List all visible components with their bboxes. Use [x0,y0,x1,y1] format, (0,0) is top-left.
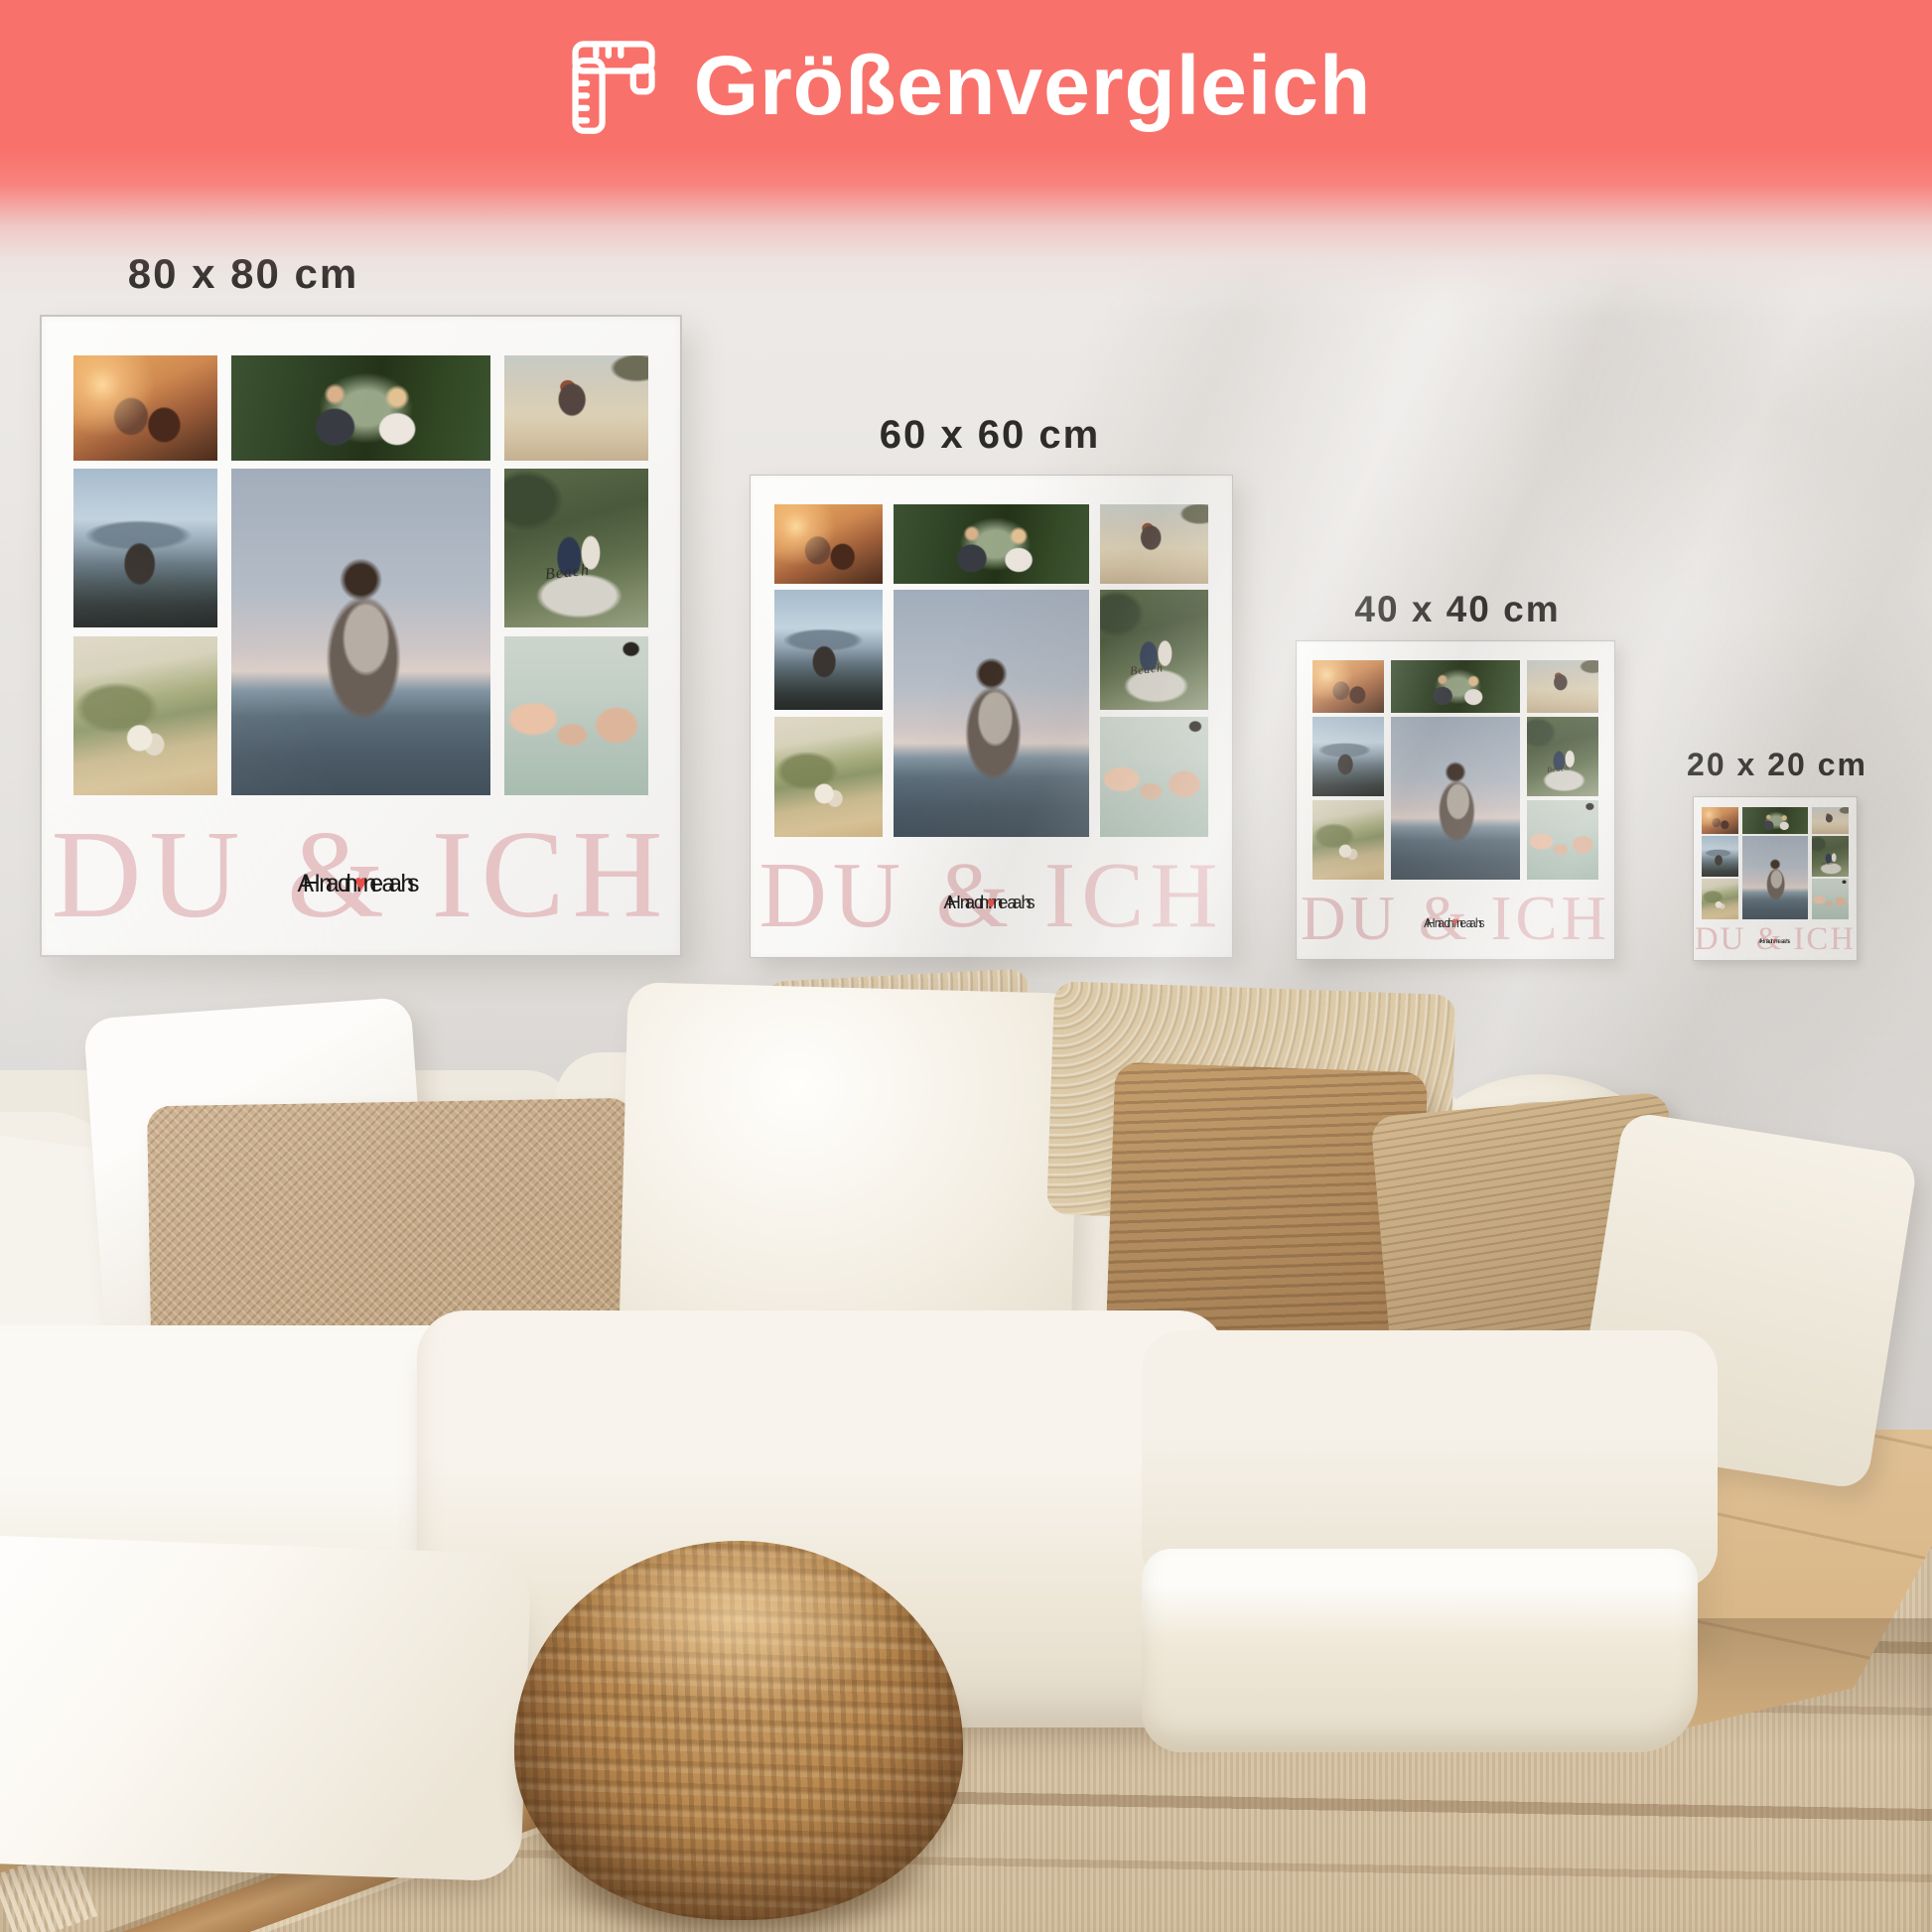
name-right: Hannah [1760,938,1791,946]
photo-couple-sunset-overlook [1312,660,1384,713]
photo-hands-pinky-promise [1527,800,1598,880]
photo-couple-in-boat: Beach [504,469,648,627]
photo-couple-mountain-view [1702,836,1738,877]
sofa-seat-right [1142,1549,1698,1752]
poster-20x20: Beach DU & ICH Andreas ♥ Hannah [1693,796,1858,961]
boat-script-text: Beach [1547,763,1570,774]
size-label-40x40: 40 x 40 cm [1259,591,1656,627]
photo-couple-in-boat: Beach [1100,590,1208,710]
collage-names: Andreas ♥ Hannah [1694,938,1857,945]
photo-couple-mountain-view [1312,717,1384,796]
header-banner: Größenvergleich [0,0,1932,298]
photo-couple-embrace-seaside [1742,836,1809,919]
header-title: Größenvergleich [694,44,1372,127]
name-right: Hannah [1427,916,1485,931]
photo-wedding-couple-park [1391,660,1520,713]
photo-hands-pinky-promise [1100,717,1208,837]
photo-couple-piggyback-beach [1527,660,1598,713]
photo-couple-sunset-overlook [774,504,883,584]
photo-wedding-couple-park [894,504,1089,584]
boat-script-text: Beach [1822,860,1834,866]
name-right: Hannah [947,892,1035,914]
photo-couple-embrace-seaside [1391,717,1520,880]
name-right: Hannah [303,869,420,898]
photo-wedding-couple-park [1742,807,1809,834]
pillow-white-large [619,982,1079,1351]
poster-60x60: Beach DU & ICH Andreas ♥ Hannah [750,475,1233,958]
photo-couple-beach-dunes [774,717,883,837]
size-label-60x60: 60 x 60 cm [791,415,1188,455]
photo-couple-beach-dunes [73,636,217,796]
photo-couple-sunset-overlook [1702,807,1738,834]
boat-script-text: Beach [1129,660,1164,678]
photo-couple-sunset-overlook [73,355,217,461]
collage-names: Andreas ♥ Hannah [42,870,680,897]
collage-names: Andreas ♥ Hannah [751,893,1232,913]
photo-couple-mountain-view [73,469,217,627]
photo-hands-pinky-promise [1812,879,1849,919]
photo-couple-piggyback-beach [1812,807,1849,834]
photo-couple-beach-dunes [1702,879,1738,919]
poster-40x40: Beach DU & ICH Andreas ♥ Hannah [1296,640,1615,960]
photo-couple-in-boat: Beach [1812,836,1849,877]
poster-80x80: Beach DU & ICH Andreas ♥ Hannah [40,315,682,957]
photo-couple-embrace-seaside [894,590,1089,836]
header-lockup: Größenvergleich [0,26,1932,145]
product-mockup-scene: 80 x 80 cm Beach DU & ICH Andreas ♥ Hann… [0,0,1932,1932]
photo-hands-pinky-promise [504,636,648,796]
size-label-20x20: 20 x 20 cm [1579,749,1932,780]
photo-wedding-couple-park [231,355,490,461]
collage-names: Andreas ♥ Hannah [1297,916,1614,930]
photo-couple-beach-dunes [1312,800,1384,880]
ruler-icon [561,34,664,137]
sofa-chaise-cushion [0,1533,532,1881]
photo-couple-mountain-view [774,590,883,710]
photo-couple-piggyback-beach [1100,504,1208,584]
photo-couple-embrace-seaside [231,469,490,795]
photo-couple-piggyback-beach [504,355,648,461]
boat-script-text: Beach [544,562,591,585]
